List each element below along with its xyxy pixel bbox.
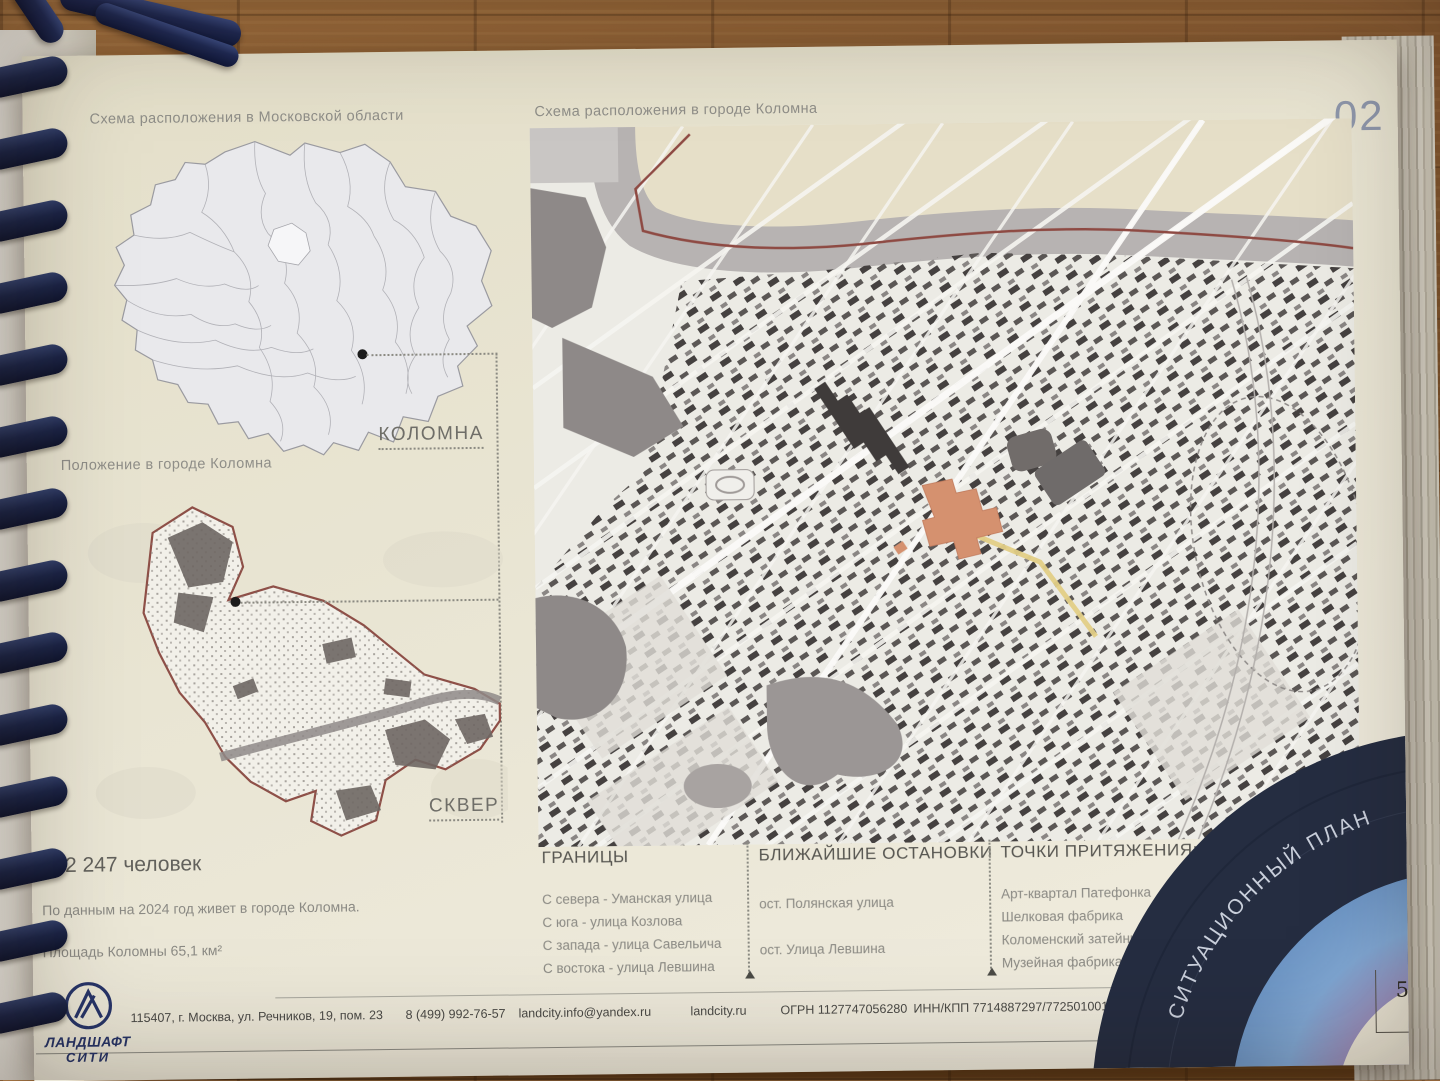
- brand-line1: ЛАНДШАФТ: [40, 1033, 136, 1050]
- border-item: С запада - улица Савельича: [543, 932, 722, 957]
- stop-item: ост. Полянская улица: [759, 891, 894, 916]
- borders-list: С севера - Уманская улица С юга - улица …: [542, 886, 722, 980]
- footer-website: landcity.ru: [690, 1004, 746, 1019]
- divider-arrow-icon: [987, 968, 997, 976]
- stops-title: БЛИЖАЙШИЕ ОСТАНОВКИ: [758, 843, 992, 866]
- population-note: По данным на 2024 год живет в городе Кол…: [42, 898, 360, 918]
- document-page: Схема расположения в Московской области …: [22, 40, 1409, 1081]
- borders-title: ГРАНИЦЫ: [542, 847, 629, 868]
- area-stat: Площадь Коломны 65,1 км²: [43, 942, 223, 960]
- border-item: С востока - улица Левшина: [543, 955, 722, 980]
- skver-callout: СКВЕР: [429, 795, 500, 822]
- vinyl-corner-graphic: СИТУАЦИОННЫЙ ПЛАН: [1050, 700, 1409, 1069]
- divider-arrow-icon: [745, 971, 755, 979]
- oblast-boundary: [113, 139, 494, 458]
- oblast-map: [105, 131, 501, 463]
- company-name: ЛАНДШАФТ СИТИ: [40, 1033, 136, 1065]
- city-map-title: Схема расположения в городе Коломна: [534, 101, 817, 120]
- kolomna-callout: КОЛОМНА: [378, 423, 484, 450]
- border-item: С севера - Уманская улица: [542, 886, 721, 911]
- footer-phone: 8 (499) 992-76-57: [405, 1007, 505, 1022]
- oblast-map-title: Схема расположения в Московской области: [89, 108, 403, 128]
- border-item: С юга - улица Козлова: [542, 909, 721, 934]
- page-number: 5: [1385, 977, 1409, 1001]
- footer-email: landcity.info@yandex.ru: [518, 1005, 651, 1021]
- city-shape-map: [82, 489, 508, 844]
- column-divider: [746, 843, 750, 975]
- brand-line2: СИТИ: [40, 1049, 136, 1065]
- footer-ogrn: ОГРН 1127747056280: [780, 1002, 907, 1018]
- footer-address: 115407, г. Москва, ул. Речников, 19, пом…: [130, 1008, 383, 1025]
- stop-item: ост. Улица Левшина: [760, 937, 886, 962]
